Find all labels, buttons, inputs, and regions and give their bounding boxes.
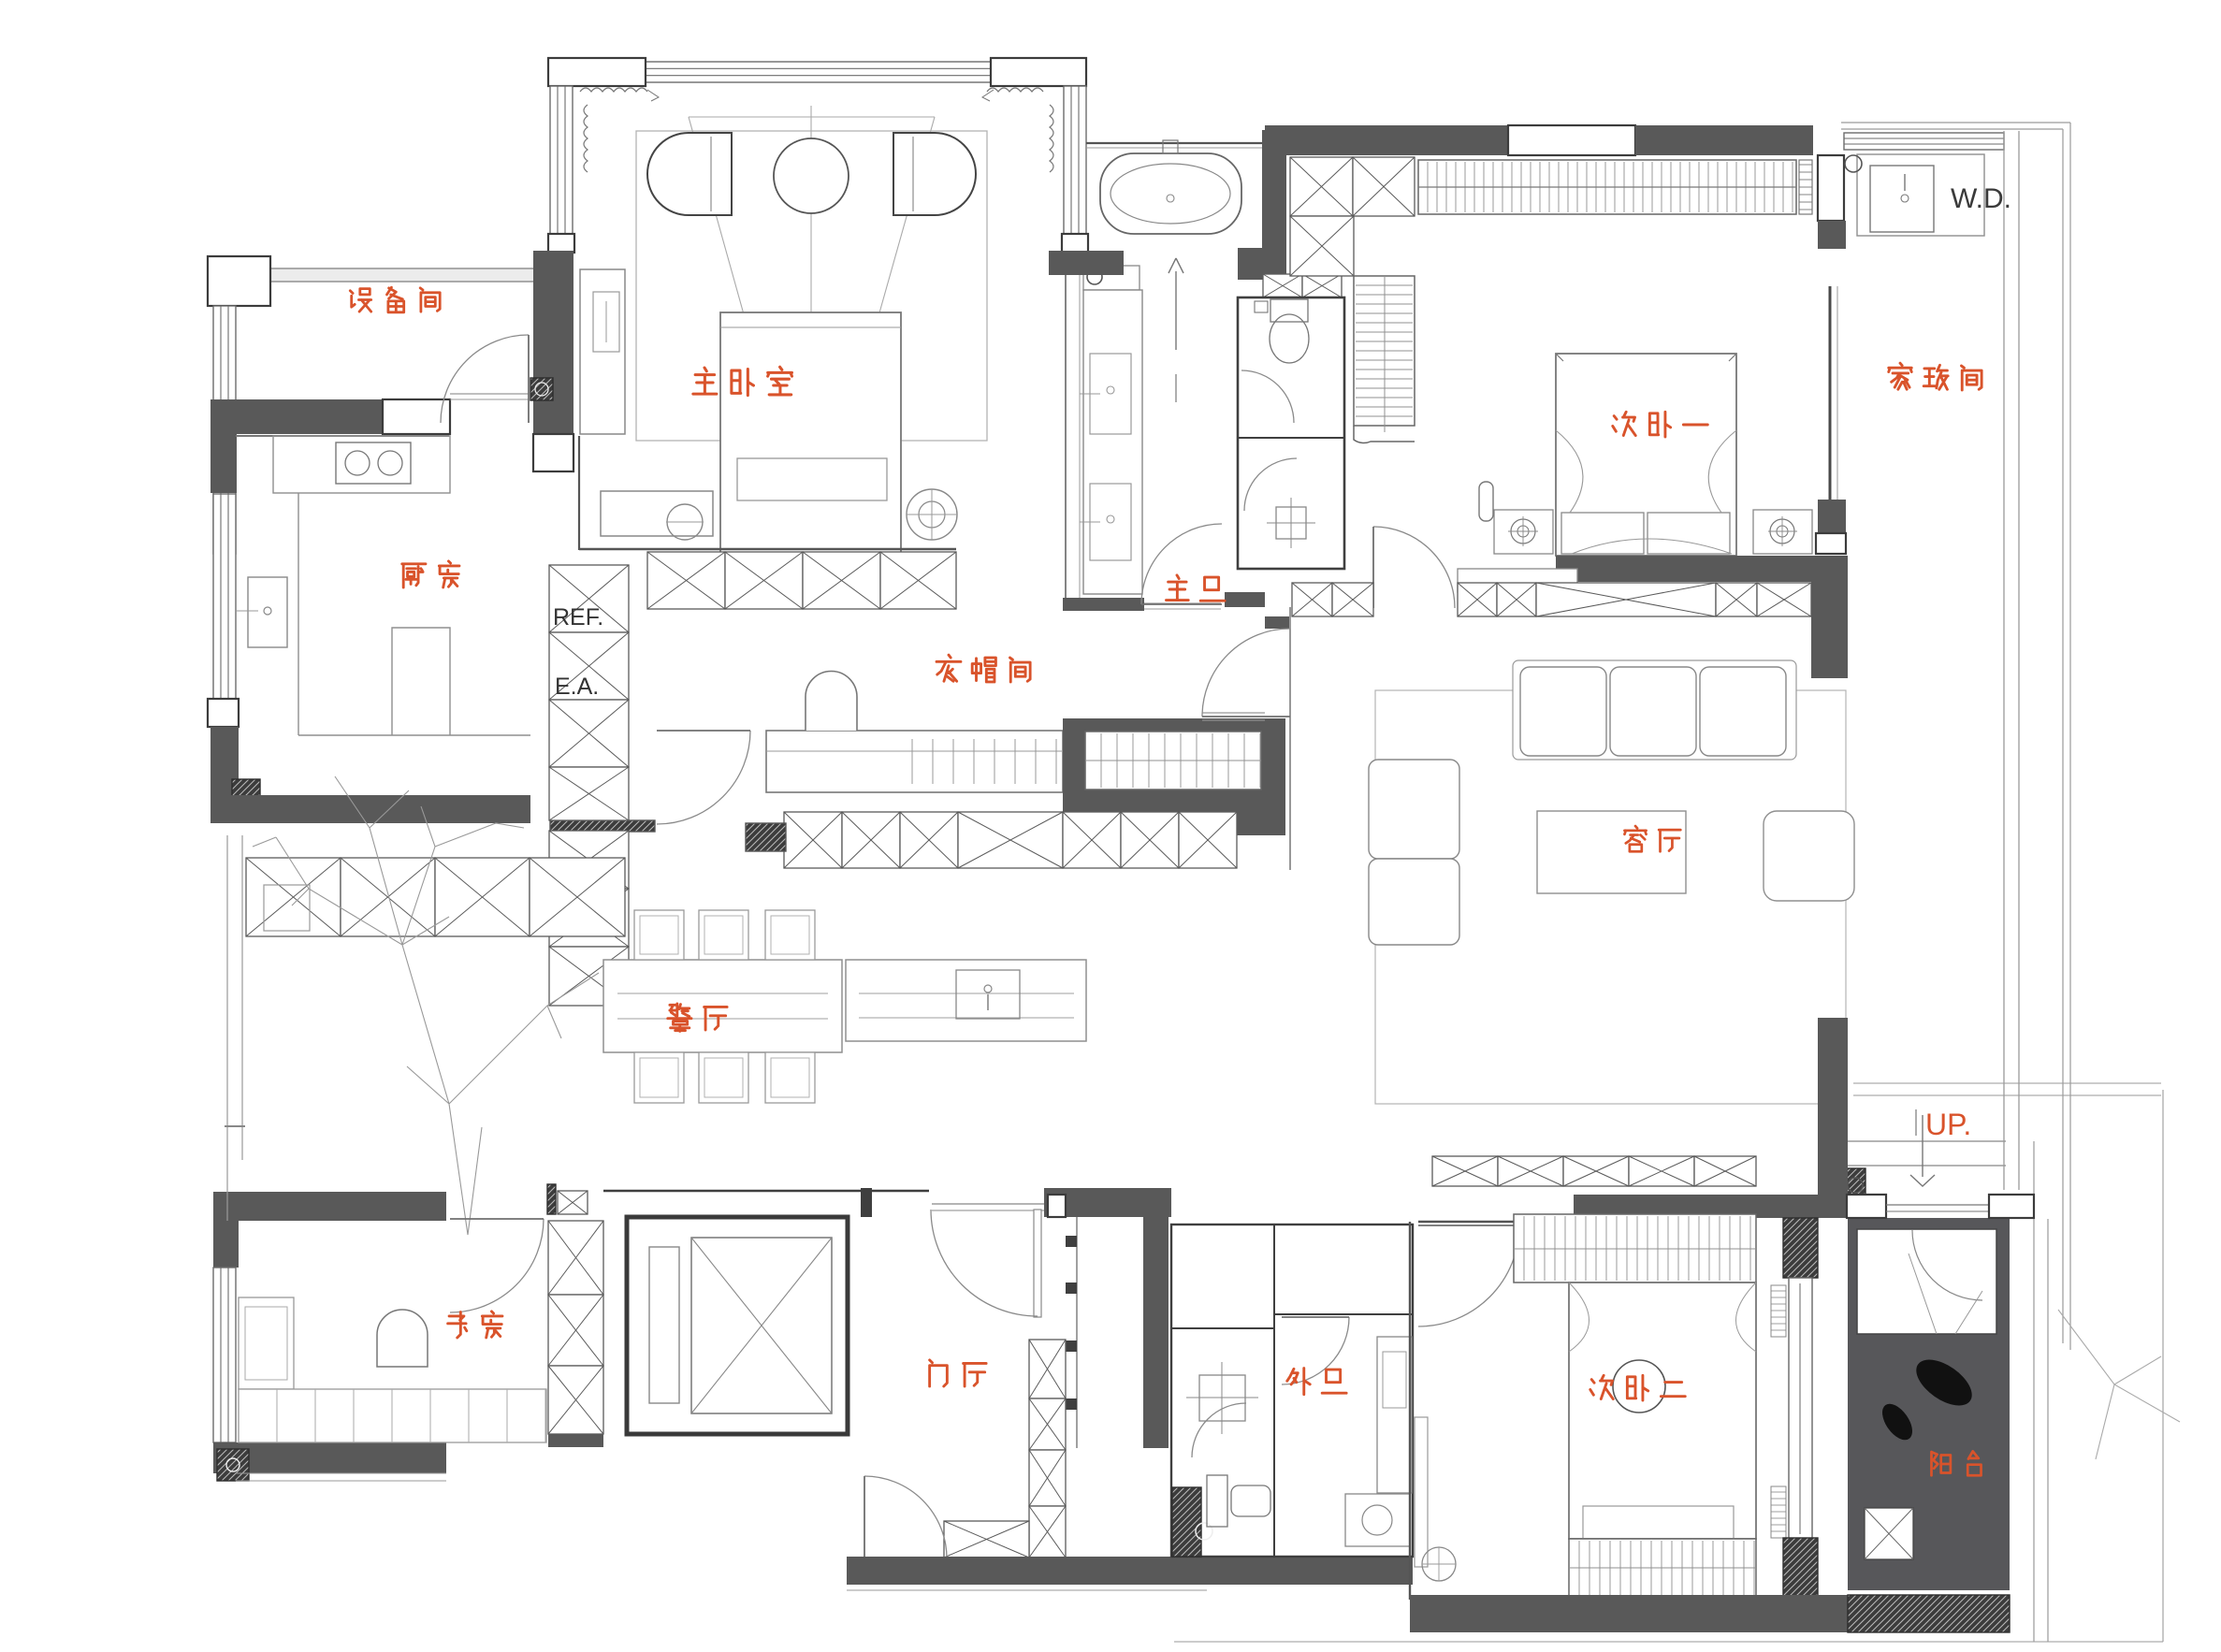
- svg-text:W.D.: W.D.: [1951, 183, 2011, 214]
- svg-text:REF.: REF.: [553, 604, 603, 630]
- svg-text:UP.: UP.: [1925, 1108, 1971, 1141]
- svg-text:E.A.: E.A.: [555, 674, 599, 700]
